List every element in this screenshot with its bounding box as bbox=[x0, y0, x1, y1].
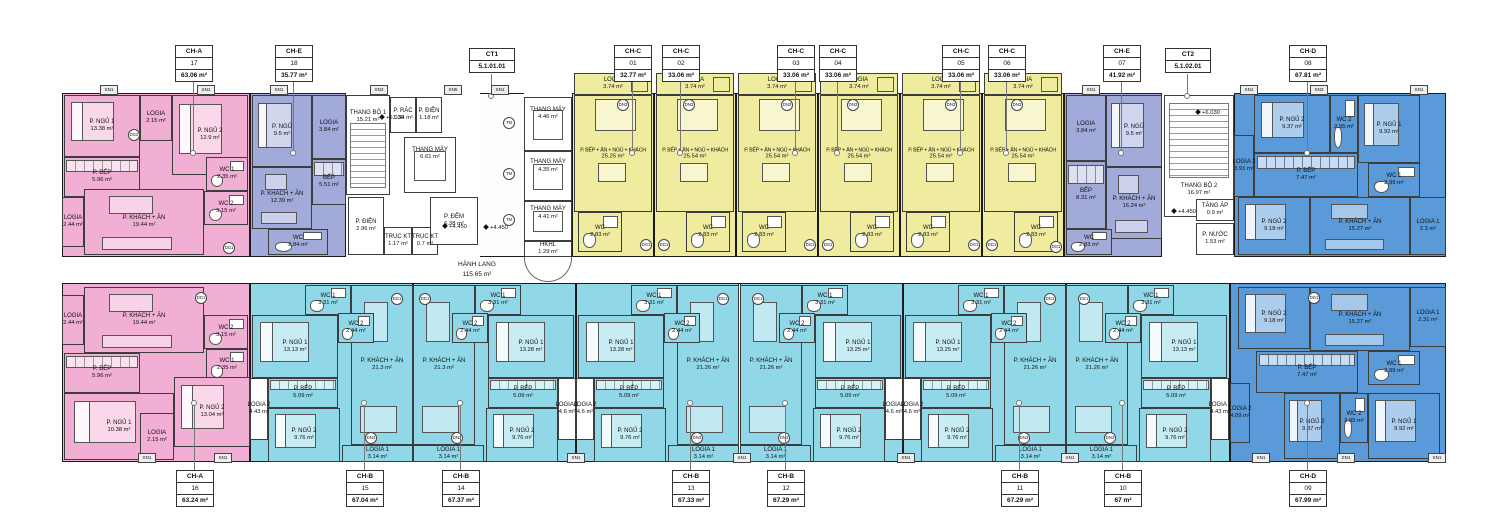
wall-tag-sn1: SN1 bbox=[1337, 453, 1355, 463]
door-tag-dg1: DG1 bbox=[195, 292, 207, 304]
room-name: P. KHÁCH + ĂN bbox=[261, 191, 304, 198]
room-name: WC bbox=[754, 225, 774, 232]
room-name: P. KHÁCH + ĂN bbox=[1113, 196, 1156, 203]
room-p-ngu-2: P. NGỦ 213.04 m² bbox=[174, 377, 250, 447]
room-area: 2.44 m² bbox=[63, 320, 83, 327]
room-p-ngu-1: P. NGỦ 19.92 m² bbox=[1358, 95, 1420, 163]
room-name: THANG MÁY bbox=[530, 107, 566, 114]
room-wc-2: WC 22.95 m² bbox=[1330, 95, 1358, 153]
room-label: WC2.83 m² bbox=[862, 225, 882, 239]
room-area: 5.09 m² bbox=[1166, 393, 1186, 400]
door-tag-dn3: DN3 bbox=[1011, 99, 1023, 111]
room-name: WC 1 bbox=[644, 293, 664, 300]
room-area: 2.44 m² bbox=[63, 222, 83, 229]
room-label: LOGIA 23.91 m² bbox=[1232, 159, 1255, 173]
room-thang-may: THANG MÁY4.35 m² bbox=[524, 151, 572, 201]
room-name: LOGIA bbox=[63, 313, 83, 320]
unit-label-number: 17 bbox=[176, 57, 212, 69]
room-wc-2: WC 22.44 m² bbox=[991, 313, 1027, 343]
room-name: P. NGỦ 1 bbox=[107, 419, 132, 426]
room-area: 2.83 m² bbox=[698, 232, 718, 239]
room-area: 9.76 m² bbox=[292, 435, 317, 442]
room-p-ngu-2: P. NGỦ 29.76 m² bbox=[813, 408, 885, 462]
room-label: WC 13.31 m² bbox=[318, 293, 338, 307]
room-label: P. BẾP5.96 m² bbox=[92, 366, 112, 380]
unit-label-code: CH-A bbox=[177, 471, 213, 482]
room-name: P. NGỦ 2 bbox=[1163, 428, 1188, 435]
room-area: 13.13 m² bbox=[1172, 347, 1197, 354]
room-area: 9.76 m² bbox=[510, 435, 535, 442]
room-label: P. NGỦ 212.9 m² bbox=[198, 128, 223, 142]
room-area: 3.31 m² bbox=[488, 300, 508, 307]
room-name: P. NGỦ 1 bbox=[846, 339, 871, 346]
unit-label-number: 5.1.01.01 bbox=[470, 60, 514, 72]
room-label: LOGIA 24.6 m² bbox=[900, 402, 923, 416]
room-area: 8.31 m² bbox=[1076, 195, 1096, 202]
door-tag-dg1: DG1 bbox=[391, 293, 403, 305]
level-mark: +6.030 bbox=[1196, 110, 1220, 116]
room-area: 3.31 m² bbox=[644, 300, 664, 307]
room-name: P. NGỦ 1 bbox=[90, 119, 115, 126]
room-wc-2: WC 22.44 m² bbox=[664, 313, 700, 343]
door-tag-dn3: DN3 bbox=[617, 99, 629, 111]
room-logia: LOGIA2.44 m² bbox=[62, 295, 84, 345]
room-label: P. NGỦ 113.38 m² bbox=[90, 119, 115, 133]
room-name: P. NGỦ bbox=[1124, 124, 1144, 131]
room-area: 2.15 m² bbox=[146, 118, 166, 125]
corridor-label: HÀNH LANG 115.65 m² bbox=[458, 260, 496, 280]
level-mark: +6.030 bbox=[380, 115, 404, 121]
room-name: P. NGỦ 2 bbox=[945, 428, 970, 435]
room-p-ngu-2: P. NGỦ 29.76 m² bbox=[921, 408, 993, 462]
unit-label-area: 67 m² bbox=[1105, 494, 1141, 506]
room-label: P. ĐIỆN1.18 m² bbox=[419, 108, 440, 122]
label-leader-dot bbox=[792, 150, 798, 156]
room-area: 25.54 m² bbox=[662, 153, 728, 160]
label-leader bbox=[194, 404, 195, 470]
room-name: THANG MÁY bbox=[530, 159, 566, 166]
room-p-khach-an: P. KHÁCH + ĂN12.39 m² bbox=[252, 167, 312, 229]
room-name: WC 1 bbox=[488, 293, 508, 300]
floor-plan-canvas: HÀNH LANG 115.65 m² P. NGỦ 113.38 m²LOGI… bbox=[0, 0, 1500, 518]
room-area: 3.31 m² bbox=[1141, 300, 1161, 307]
room-name: P. NGỦ 2 bbox=[1262, 219, 1287, 226]
room-logia-1: LOGIA 13.14 m² bbox=[342, 445, 413, 462]
room-label: P. BẾP + ĂN + NGỦ + KHÁCH25.54 m² bbox=[908, 147, 974, 160]
room-area: 21.26 m² bbox=[1076, 365, 1119, 372]
room-p-khach-an: P. KHÁCH + ĂN15.27 m² bbox=[1310, 287, 1410, 351]
room-area: 9.18 m² bbox=[1262, 226, 1287, 233]
room-area: 5.09 m² bbox=[946, 393, 966, 400]
room-area: 21.26 m² bbox=[1014, 365, 1057, 372]
unit-label-number: 18 bbox=[276, 57, 312, 69]
room-p-ngu-2: P. NGỦ 29.18 m² bbox=[1238, 287, 1310, 349]
room-name: P. NGỦ 2 bbox=[200, 405, 225, 412]
door-tag-dg1: DG1 bbox=[1050, 241, 1062, 253]
door-tag-dg1: DG1 bbox=[752, 293, 764, 305]
unit-label-ch-d-08: CH-D0867.81 m² bbox=[1289, 45, 1327, 82]
label-leader-dot bbox=[1304, 150, 1310, 156]
unit-label-ch-b-11: CH-B1167.29 m² bbox=[1001, 470, 1039, 507]
wall-tag-sn1: SN1 bbox=[1410, 85, 1428, 95]
unit-label-number: 06 bbox=[989, 57, 1025, 69]
room-area: 2.83 m² bbox=[862, 232, 882, 239]
room-label: TRỤC KT0.7 m² bbox=[412, 234, 438, 248]
room-label: THANG BỘ 216.97 m² bbox=[1181, 183, 1217, 197]
room-area: 2.96 m² bbox=[356, 226, 377, 233]
unit-label-code: CT2 bbox=[1166, 49, 1210, 60]
room-name: LOGIA 2 bbox=[1232, 159, 1255, 166]
unit-label-number: 12 bbox=[768, 482, 804, 494]
room-p-ngu-1: P. NGỦ 113.38 m² bbox=[64, 95, 140, 157]
room-area: 25.54 m² bbox=[990, 153, 1056, 160]
unit-label-number: 01 bbox=[615, 57, 651, 69]
unit-label-number: 15 bbox=[347, 482, 383, 494]
room-label: WC 22.44 m² bbox=[672, 321, 692, 335]
room-name: WC 2 bbox=[787, 321, 807, 328]
room-label: P. NGỦ 113.13 m² bbox=[283, 339, 308, 353]
label-leader bbox=[632, 81, 633, 152]
room-label: P. BẾP + ĂN + NGỦ + KHÁCH25.54 m² bbox=[990, 147, 1056, 160]
room-name: P. ĐIỆN bbox=[356, 219, 377, 226]
room-name: WC 1 bbox=[318, 293, 338, 300]
room-area: 21.26 m² bbox=[750, 365, 793, 372]
wall-tag-sn1: SN1 bbox=[567, 453, 585, 463]
room-label: WC2.83 m² bbox=[1026, 225, 1046, 239]
room-name: TRỤC KT bbox=[385, 234, 411, 241]
room-label: LOGIA2.15 m² bbox=[146, 111, 166, 125]
room-name: P. NGỦ 2 bbox=[510, 428, 535, 435]
room-area: 4.43 m² bbox=[247, 409, 270, 416]
room-p-ngu-1: P. NGỦ 113.13 m² bbox=[252, 315, 338, 378]
room-label: P. NGỦ 29.76 m² bbox=[618, 428, 643, 442]
wall-tag-sn3: SN3 bbox=[1310, 85, 1328, 95]
room-label: P. KHÁCH + ĂN21.3 m² bbox=[361, 358, 404, 372]
room-name: P. NGỦ 1 bbox=[1377, 122, 1402, 129]
room-area: 13.13 m² bbox=[283, 347, 308, 354]
room-label: LOGIA3.84 m² bbox=[1076, 121, 1096, 135]
room-name: WC 2 bbox=[672, 321, 692, 328]
room-name: WC 1 bbox=[217, 358, 237, 365]
unit-label-ch-c-04: CH-C0433.06 m² bbox=[819, 45, 857, 82]
room-area: 4.35 m² bbox=[530, 167, 566, 174]
room-p-ngu-1: P. NGỦ 113.28 m² bbox=[488, 315, 574, 378]
room-p-khach-an: P. KHÁCH + ĂN21.26 m² bbox=[677, 285, 739, 445]
label-leader-dot bbox=[1118, 150, 1124, 156]
room-area: 2.44 m² bbox=[1113, 328, 1133, 335]
door-tag-dg1: DG1 bbox=[1308, 292, 1320, 304]
room-p-khach-an: P. KHÁCH + ĂN21.26 m² bbox=[1066, 285, 1128, 445]
room-label: LOGIA 24.6 m² bbox=[573, 402, 596, 416]
room-name: P. KHÁCH + ĂN bbox=[750, 358, 793, 365]
room-name: LOGIA bbox=[319, 120, 339, 127]
room-area: 2.83 m² bbox=[1026, 232, 1046, 239]
room-p-bep: P. BẾP7.47 m² bbox=[1256, 351, 1358, 393]
wall-tag-sn1: SN1 bbox=[138, 453, 156, 463]
room-area: 2.44 m² bbox=[346, 328, 366, 335]
room-area: 5.96 m² bbox=[92, 177, 112, 184]
room-label: WC2.83 m² bbox=[918, 225, 938, 239]
room-logia-1: LOGIA 13.14 m² bbox=[668, 445, 739, 462]
room-name: WC 1 bbox=[1141, 293, 1161, 300]
unit-label-area: 33.06 m² bbox=[820, 69, 856, 81]
room-name: THANG MÁY bbox=[412, 147, 448, 154]
room-area: 1.18 m² bbox=[419, 115, 440, 122]
room-p-ngu: P. NGỦ9.5 m² bbox=[252, 95, 312, 167]
label-leader-dot bbox=[290, 150, 296, 156]
unit-label-ch-a-17: CH-A1763.06 m² bbox=[175, 45, 213, 82]
room-label: P. KHÁCH + ĂN21.26 m² bbox=[687, 358, 730, 372]
level-mark-value: +4.450 bbox=[1178, 209, 1196, 215]
room-name: WC bbox=[698, 225, 718, 232]
room-area: 2.83 m² bbox=[918, 232, 938, 239]
room-label: P. KHÁCH + ĂN21.26 m² bbox=[750, 358, 793, 372]
room-area: 1.29 m² bbox=[538, 249, 558, 256]
room-wc-2: WC 22.44 m² bbox=[452, 313, 488, 343]
door-tag-dg1: DG1 bbox=[419, 293, 431, 305]
label-leader bbox=[1187, 74, 1188, 95]
room-area: 5.96 m² bbox=[92, 373, 112, 380]
room-name: LOGIA 1 bbox=[764, 446, 787, 453]
room-name: LOGIA bbox=[1076, 121, 1096, 128]
room-p-bep-an-ngu-khach: P. BẾP + ĂN + NGỦ + KHÁCH25.54 m² bbox=[820, 95, 898, 212]
label-leader-dot bbox=[1184, 93, 1190, 99]
door-tag-tm: TM bbox=[503, 117, 515, 129]
label-leader bbox=[1006, 81, 1007, 152]
room-name: THANG MÁY bbox=[530, 206, 566, 213]
label-leader bbox=[1019, 404, 1020, 470]
door-tag-dg2: DG2 bbox=[128, 129, 140, 141]
door-tag-dn3: DN3 bbox=[778, 432, 790, 444]
room-area: 3.74 m² bbox=[931, 84, 951, 91]
room-label: WC 22.44 m² bbox=[1113, 321, 1133, 335]
room-label: P. BẾP5.09 m² bbox=[1166, 386, 1186, 400]
room-area: 3.14 m² bbox=[437, 454, 460, 461]
wall-tag-sn1: SN1 bbox=[491, 85, 509, 95]
room-area: 12.39 m² bbox=[261, 198, 304, 205]
room-name: P. NGỦ 1 bbox=[1392, 419, 1417, 426]
unit-label-code: CH-C bbox=[778, 46, 814, 57]
unit-label-code: CT1 bbox=[470, 49, 514, 60]
room-logia-2: LOGIA 24.43 m² bbox=[1211, 378, 1229, 440]
room-label: LOGIA2.44 m² bbox=[63, 313, 83, 327]
room-p-ngu-2: P. NGỦ 29.76 m² bbox=[486, 408, 558, 462]
room-name: LOGIA 1 bbox=[692, 446, 715, 453]
room-area: 0.7 m² bbox=[412, 241, 438, 248]
label-leader bbox=[680, 81, 681, 152]
room-p-ngu-1: P. NGỦ 113.25 m² bbox=[905, 315, 991, 378]
door-tag-dg1: DG1 bbox=[822, 239, 834, 251]
room-area: 16.24 m² bbox=[1113, 203, 1156, 210]
room-label: WC 13.31 m² bbox=[971, 293, 991, 307]
room-area: 25.54 m² bbox=[744, 153, 810, 160]
room-label: P. BẾP5.09 m² bbox=[619, 386, 639, 400]
room-p-khach-an: P. KHÁCH + ĂN19.44 m² bbox=[84, 189, 204, 255]
unit-label-code: CH-B bbox=[673, 471, 709, 482]
unit-label-ch-a-16: CH-A1663.24 m² bbox=[176, 470, 214, 507]
room-area: 2.95 m² bbox=[1344, 418, 1364, 425]
room-area: 3.74 m² bbox=[603, 84, 623, 91]
room-area: 19.44 m² bbox=[123, 222, 166, 229]
room-name: P. NGỦ 1 bbox=[936, 339, 961, 346]
unit-label-number: 09 bbox=[1290, 482, 1326, 494]
room-area: 5.09 m² bbox=[513, 393, 533, 400]
unit-label-code: CH-B bbox=[1002, 471, 1038, 482]
room-area: 3.14 m² bbox=[764, 454, 787, 461]
room-name: P. KHÁCH + ĂN bbox=[1339, 219, 1382, 226]
unit-label-number: 05 bbox=[943, 57, 979, 69]
room-area: 19.44 m² bbox=[123, 320, 166, 327]
room-area: 4.41 m² bbox=[530, 214, 566, 221]
room-name: BẾP bbox=[319, 175, 339, 182]
room-p-ngu: P. NGỦ9.5 m² bbox=[1106, 95, 1162, 167]
room-area: 3.31 m² bbox=[318, 300, 338, 307]
room-name: P. NGỦ 2 bbox=[1300, 419, 1325, 426]
label-leader bbox=[1121, 81, 1122, 152]
room-label: WC2.83 m² bbox=[754, 225, 774, 239]
room-area: 9.76 m² bbox=[837, 435, 862, 442]
room-tang-ap: TĂNG ÁP0.9 m² bbox=[1196, 199, 1234, 221]
door-tag-dn3: DN3 bbox=[945, 99, 957, 111]
room-label: WC2.83 m² bbox=[1079, 235, 1099, 249]
room-label: P. NƯỚC1.53 m² bbox=[1202, 232, 1228, 246]
unit-label-area: 67.99 m² bbox=[1290, 494, 1326, 506]
room-label: LOGIA 13.14 m² bbox=[764, 446, 787, 460]
room-label: TĂNG ÁP0.9 m² bbox=[1202, 203, 1228, 217]
room-p-bep-an-ngu-khach: P. BẾP + ĂN + NGỦ + KHÁCH25.54 m² bbox=[656, 95, 734, 212]
room-name: P. KHÁCH + ĂN bbox=[123, 313, 166, 320]
door-tag-dn3: DN3 bbox=[1104, 432, 1116, 444]
room-label: P. NGỦ 29.76 m² bbox=[510, 428, 535, 442]
room-area: 13.25 m² bbox=[936, 347, 961, 354]
room-name: P. BẾP bbox=[92, 366, 112, 373]
room-name: WC bbox=[1079, 235, 1099, 242]
room-label: P. BẾP5.09 m² bbox=[946, 386, 966, 400]
room-p-ngu-1: P. NGỦ 113.28 m² bbox=[578, 315, 664, 378]
room-logia-1: LOGIA 13.14 m² bbox=[995, 445, 1066, 462]
room-label: P. NGỦ 29.18 m² bbox=[1262, 219, 1287, 233]
label-leader bbox=[785, 404, 786, 470]
room-label: LOGIA 12.3 m² bbox=[1416, 219, 1439, 233]
room-name: WC 1 bbox=[971, 293, 991, 300]
unit-label-code: CH-C bbox=[615, 46, 651, 57]
room-area: 2.3 m² bbox=[1416, 226, 1439, 233]
room-label: P. KHÁCH + ĂN15.27 m² bbox=[1339, 312, 1382, 326]
label-leader bbox=[293, 81, 294, 152]
room-label: P. NGỦ 113.25 m² bbox=[846, 339, 871, 353]
room-label: HKHL1.29 m² bbox=[538, 242, 558, 256]
room-label: TRỤC KT1.17 m² bbox=[385, 234, 411, 248]
room-name: THANG BỘ 2 bbox=[1181, 183, 1217, 190]
room-area: 3.15 m² bbox=[216, 332, 236, 339]
room-area: 3.74 m² bbox=[767, 84, 787, 91]
unit-label-code: CH-E bbox=[1104, 46, 1140, 57]
room-p-khach-an: P. KHÁCH + ĂN21.26 m² bbox=[1004, 285, 1066, 445]
unit-label-code: CH-A bbox=[176, 46, 212, 57]
room-label: LOGIA 12.31 m² bbox=[1416, 310, 1439, 324]
unit-label-code: CH-C bbox=[989, 46, 1025, 57]
room-label: LOGIA2.15 m² bbox=[147, 429, 167, 443]
door-tag-tm: TM bbox=[503, 214, 515, 226]
room-area: 5.09 m² bbox=[840, 393, 860, 400]
room-p-dien: P. ĐIỆN2.96 m² bbox=[348, 197, 384, 255]
room-label: P. NGỦ 29.37 m² bbox=[1280, 117, 1305, 131]
room-area: 3.31 m² bbox=[971, 300, 991, 307]
room-logia: LOGIA3.84 m² bbox=[312, 95, 346, 159]
room-name: P. BẾP bbox=[513, 386, 533, 393]
room-name: P. NGỦ 1 bbox=[519, 339, 544, 346]
room-name: WC 1 bbox=[217, 167, 237, 174]
room-label: P. NGỦ 113.28 m² bbox=[519, 339, 544, 353]
room-wc-1: WC 13.31 m² bbox=[1128, 285, 1174, 315]
room-name: TĂNG ÁP bbox=[1202, 203, 1228, 210]
room-name: P. BẾP bbox=[619, 386, 639, 393]
room-label: THANG MÁY6.61 m² bbox=[412, 147, 448, 161]
room-area: 7.47 m² bbox=[1297, 372, 1317, 379]
room-wc-2: WC 22.44 m² bbox=[779, 313, 815, 343]
label-leader bbox=[837, 81, 838, 152]
wall-tag-sn1: SN1 bbox=[100, 85, 118, 95]
room-name: P. NGỦ 2 bbox=[198, 128, 223, 135]
unit-label-number: 14 bbox=[443, 482, 479, 494]
corridor-door-arc bbox=[524, 257, 572, 282]
room-name: WC 1 bbox=[815, 293, 835, 300]
room-name: P. KHÁCH + ĂN bbox=[123, 215, 166, 222]
room-area: 9.37 m² bbox=[1280, 124, 1305, 131]
room-label: LOGIA 13.14 m² bbox=[1090, 446, 1113, 460]
room-area: 10.38 m² bbox=[107, 427, 132, 434]
room-name: WC 1 bbox=[1384, 173, 1404, 180]
wall-tag-sn3: SN3 bbox=[370, 85, 388, 95]
room-label: P. NGỦ 113.13 m² bbox=[1172, 339, 1197, 353]
room-area: 3.14 m² bbox=[1019, 454, 1042, 461]
room-p-bep-an-ngu-khach: P. BẾP + ĂN + NGỦ + KHÁCH25.54 m² bbox=[902, 95, 980, 212]
room-name: LOGIA 1 bbox=[1090, 446, 1113, 453]
room-label: P. KHÁCH + ĂN21.3 m² bbox=[423, 358, 466, 372]
room-name: LOGIA 1 bbox=[1019, 446, 1042, 453]
room-label: WC 13.31 m² bbox=[1141, 293, 1161, 307]
room-label: WC2.83 m² bbox=[698, 225, 718, 239]
room-label: P. BẾP + ĂN + NGỦ + KHÁCH25.54 m² bbox=[744, 147, 810, 160]
room-p-ngu-2: P. NGỦ 29.76 m² bbox=[268, 408, 340, 462]
room-p-bep: P. BẾP5.09 m² bbox=[921, 378, 991, 408]
door-tag-dn3: DN3 bbox=[691, 432, 703, 444]
unit-label-area: 35.77 m² bbox=[276, 69, 312, 81]
door-tag-dn3: DN3 bbox=[683, 99, 695, 111]
room-label: LOGIA 24.43 m² bbox=[247, 402, 270, 416]
room-label: P. KHÁCH + ĂN19.44 m² bbox=[123, 215, 166, 229]
room-name: P. NƯỚC bbox=[1202, 232, 1228, 239]
unit-label-number: 03 bbox=[778, 57, 814, 69]
unit-label-number: 04 bbox=[820, 57, 856, 69]
room-area: 3.15 m² bbox=[216, 208, 236, 215]
room-wc-2: WC 22.44 m² bbox=[338, 313, 374, 343]
room-area: 2.83 m² bbox=[1079, 242, 1099, 249]
room-label: THANG MÁY4.46 m² bbox=[530, 107, 566, 121]
unit-label-ch-b-13: CH-B1367.33 m² bbox=[672, 470, 710, 507]
room-area: 13.04 m² bbox=[200, 412, 225, 419]
room-label: WC 12.99 m² bbox=[1384, 361, 1404, 375]
room-name: P. NGỦ 1 bbox=[609, 339, 634, 346]
room-name: WC 2 bbox=[1334, 117, 1354, 124]
room-area: 13.28 m² bbox=[609, 347, 634, 354]
room-hkhl: HKHL1.29 m² bbox=[524, 241, 572, 257]
unit-label-area: 41.92 m² bbox=[1104, 69, 1140, 81]
room-name: P. BẾP bbox=[1166, 386, 1186, 393]
room-p-bep: P. BẾP5.09 m² bbox=[268, 378, 338, 408]
room-label: P. NGỦ 213.04 m² bbox=[200, 405, 225, 419]
room-p-ngu-2: P. NGỦ 29.76 m² bbox=[594, 408, 666, 462]
